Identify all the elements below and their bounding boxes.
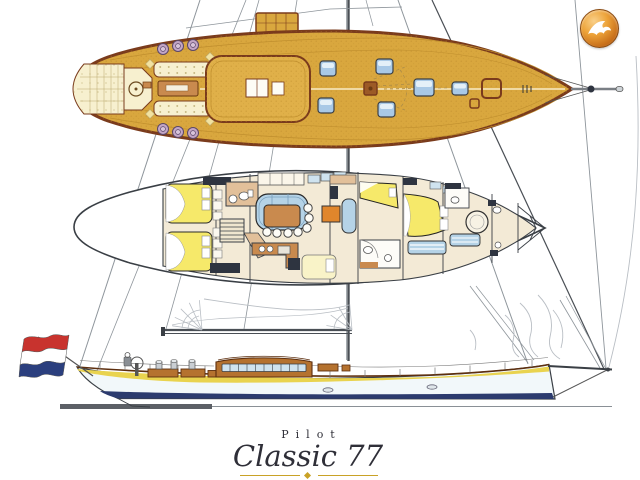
sail-fan-aft: [172, 300, 202, 330]
locker: [490, 250, 498, 256]
staysail-furl-line: [470, 286, 528, 363]
winch: [173, 41, 184, 52]
sink: [495, 242, 501, 248]
binnacle: [124, 357, 131, 366]
nav-cabinet: [330, 175, 356, 184]
binnacle-box: [143, 82, 151, 88]
salon-table: [264, 205, 300, 227]
galley-sink: [259, 246, 265, 252]
mast-dot: [369, 87, 373, 91]
crew-table: [466, 211, 488, 233]
dutch-flag: [19, 335, 69, 378]
cockpit-coaming: [181, 369, 205, 377]
stove: [278, 246, 290, 254]
companionway-hatch: [272, 82, 284, 95]
sail-profile: [0, 0, 640, 480]
underline-diamond: [304, 472, 311, 479]
pillow: [326, 259, 334, 272]
hatch: [376, 59, 393, 74]
porthole: [323, 388, 333, 392]
galley-sink: [267, 246, 273, 252]
toilet: [493, 207, 501, 213]
pillow: [202, 188, 210, 198]
pillow: [202, 248, 210, 258]
vent-box: [342, 365, 350, 371]
locker: [445, 183, 461, 189]
winch: [173, 127, 184, 138]
hatch: [414, 79, 434, 96]
nav-table: [322, 206, 340, 222]
cranse-iron: [606, 368, 610, 372]
locker: [488, 200, 496, 206]
falcon-badge: [580, 9, 619, 48]
hatch: [318, 98, 334, 113]
hatch: [320, 61, 336, 76]
jib-leech-line: [575, 0, 606, 368]
cockpit-coaming: [148, 369, 178, 377]
boom-and-furled-main: [161, 295, 563, 359]
saloon-skylight: [318, 364, 338, 371]
pillow: [202, 236, 210, 246]
profile-view: [19, 295, 612, 409]
sink: [229, 195, 237, 203]
fridge: [288, 258, 300, 270]
table-leaf: [166, 85, 188, 91]
halyard-line: [366, 0, 373, 26]
hatch: [378, 102, 395, 117]
sideboard: [258, 173, 304, 185]
accommodation-plan: [74, 171, 545, 285]
flag-band-blue: [19, 361, 65, 377]
crew-bunk: [450, 234, 480, 246]
porthole: [427, 385, 437, 389]
bowsprit-cap: [616, 87, 623, 92]
hatch: [452, 82, 468, 95]
staysail-furl-line2: [476, 286, 534, 360]
toilet: [364, 247, 373, 254]
nav-bench: [342, 199, 356, 233]
winch: [188, 40, 199, 51]
underline-right: [318, 475, 378, 476]
falcon-icon: [585, 14, 614, 43]
toilet: [451, 197, 459, 203]
bowsprit-fitting: [588, 86, 595, 93]
genoa-leech-curve: [609, 56, 638, 367]
winch: [158, 124, 169, 135]
pillow: [389, 188, 396, 197]
winch: [158, 44, 169, 55]
deck-plan: [73, 13, 623, 147]
profile-winches: [156, 360, 195, 370]
winch: [188, 128, 199, 139]
cockpit-bench: [154, 62, 212, 77]
pillow: [202, 200, 210, 210]
wheel-pedestal: [135, 363, 139, 376]
yacht-drawing-page: Pilot Classic 77: [0, 0, 640, 480]
sink: [385, 255, 392, 262]
wheel-hub: [135, 88, 138, 91]
boat-title: Pilot Classic 77: [160, 428, 456, 471]
wardrobe: [210, 263, 240, 273]
pillow: [440, 219, 448, 230]
helm-platform: [124, 68, 152, 110]
underline-left: [240, 475, 300, 476]
helm-station: [124, 353, 143, 377]
bobstay: [553, 370, 607, 397]
title-underline: [240, 473, 378, 479]
locker: [403, 178, 417, 185]
boom-end-cap: [161, 327, 165, 336]
toilet-tank: [248, 190, 253, 197]
jib-furl-line: [560, 300, 600, 368]
cockpit-bench: [154, 101, 212, 116]
furled-main-top: [204, 299, 349, 310]
jib-furl-line2: [566, 296, 606, 369]
companionway-stairs: [220, 219, 244, 242]
locker: [330, 186, 338, 199]
vanity: [360, 262, 378, 268]
crew-bunk: [408, 241, 446, 254]
toilet: [239, 192, 249, 200]
title-model: Classic 77: [160, 441, 456, 471]
